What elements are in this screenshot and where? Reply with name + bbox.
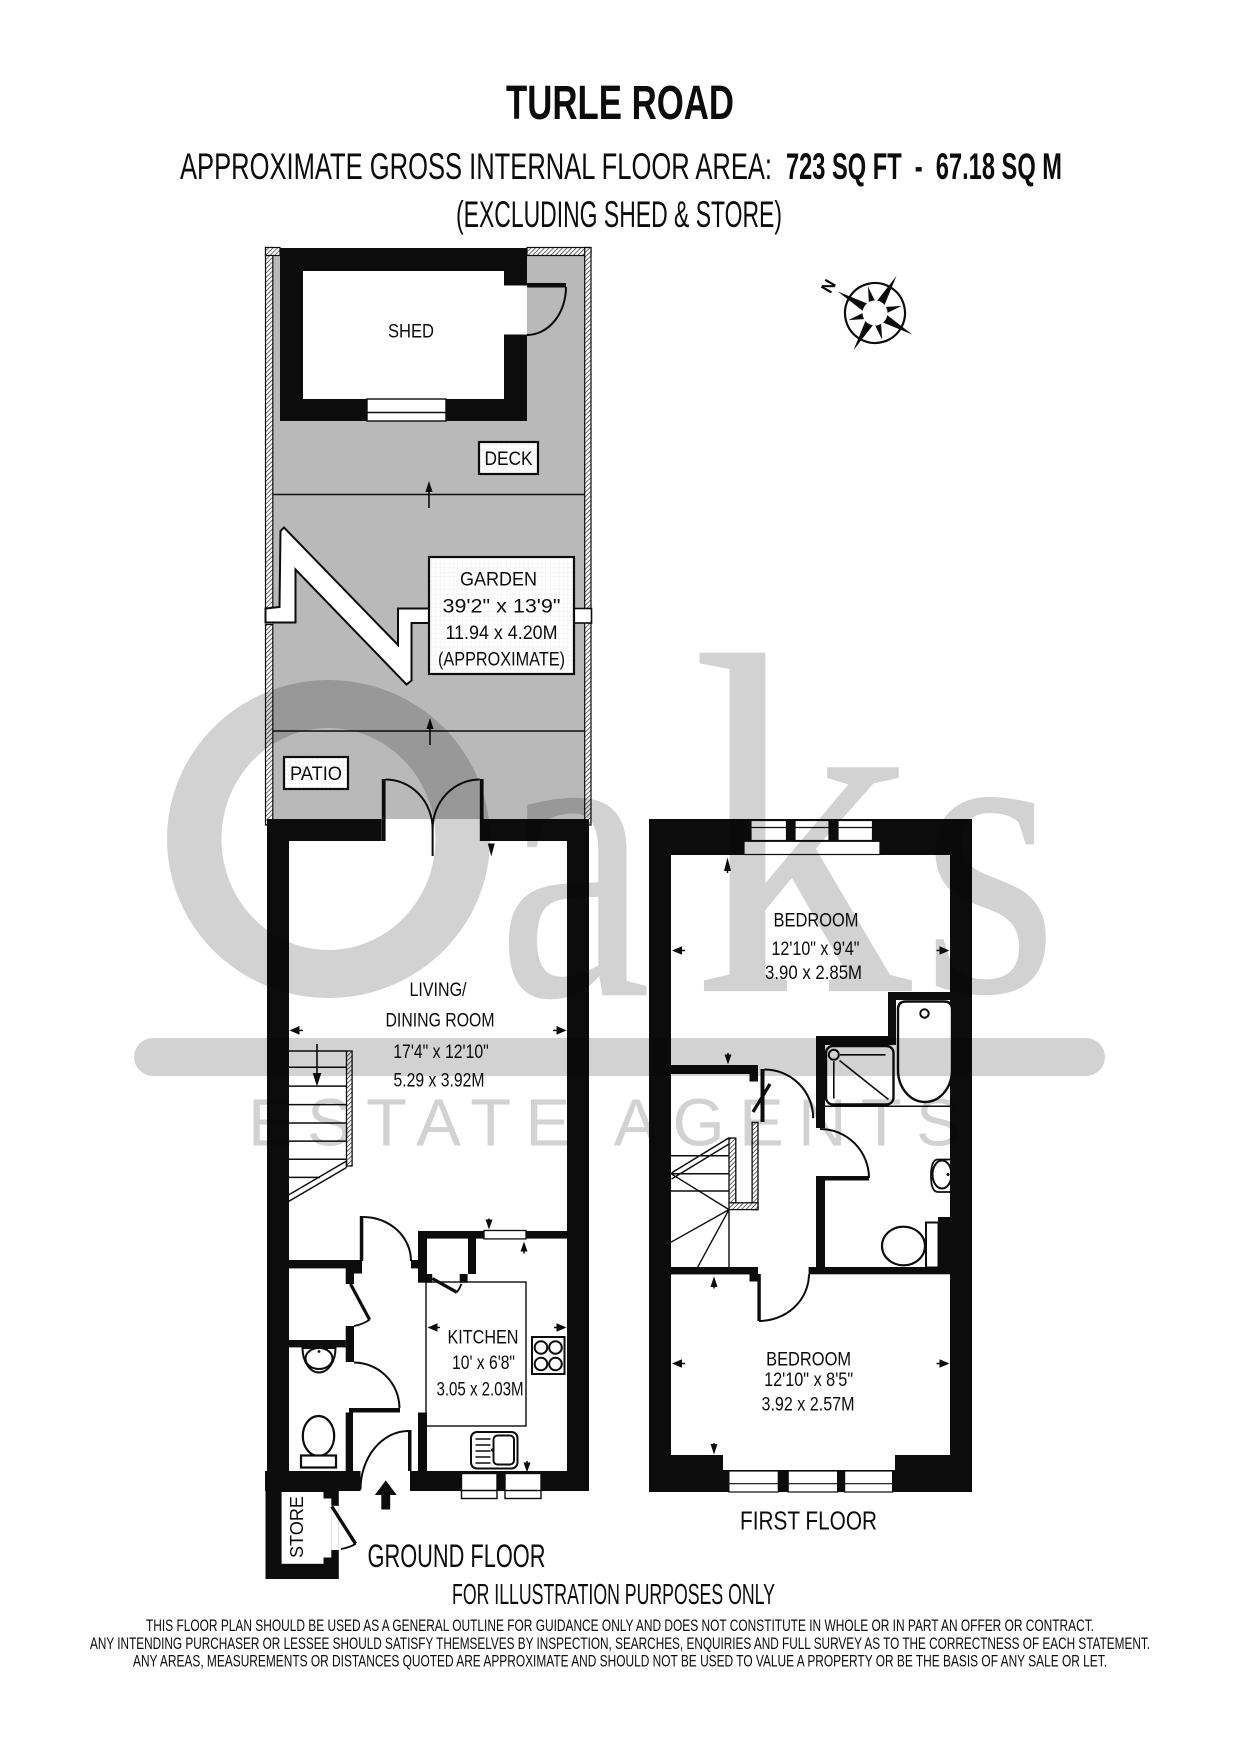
- svg-text:GROUND FLOOR: GROUND FLOOR: [368, 1538, 546, 1574]
- svg-text:3.92 x 2.57M: 3.92 x 2.57M: [762, 1395, 855, 1416]
- svg-text:(EXCLUDING SHED & STORE): (EXCLUDING SHED & STORE): [456, 194, 782, 235]
- svg-text:DINING ROOM: DINING ROOM: [386, 1011, 495, 1032]
- svg-text:APPROXIMATE GROSS INTERNAL FLO: APPROXIMATE GROSS INTERNAL FLOOR AREA:: [180, 146, 772, 187]
- svg-text:THIS FLOOR PLAN SHOULD BE USED: THIS FLOOR PLAN SHOULD BE USED AS A GENE…: [146, 1617, 1094, 1635]
- svg-text:a: a: [497, 620, 652, 1086]
- svg-text:10' x 6'8": 10' x 6'8": [452, 1353, 515, 1374]
- svg-text:s: s: [921, 625, 1059, 1081]
- svg-text:k: k: [691, 556, 912, 1097]
- svg-text:ESTATE AGENTS: ESTATE AGENTS: [248, 1086, 975, 1161]
- svg-text:ANY AREAS, MEASUREMENTS OR DIS: ANY AREAS, MEASUREMENTS OR DISTANCES QUO…: [133, 1653, 1107, 1671]
- svg-text:BEDROOM: BEDROOM: [766, 1350, 851, 1371]
- svg-text:STORE: STORE: [287, 1496, 307, 1558]
- svg-text:TURLE ROAD: TURLE ROAD: [506, 77, 734, 130]
- svg-text:ANY INTENDING PURCHASER OR LES: ANY INTENDING PURCHASER OR LESSEE SHOULD…: [90, 1635, 1150, 1653]
- svg-text:SHED: SHED: [388, 322, 434, 343]
- svg-text:KITCHEN: KITCHEN: [448, 1328, 519, 1349]
- svg-text:FIRST FLOOR: FIRST FLOOR: [740, 1508, 877, 1536]
- svg-text:39'2" x 13'9": 39'2" x 13'9": [443, 597, 561, 618]
- svg-text:GARDEN: GARDEN: [460, 570, 537, 591]
- svg-text:LIVING/: LIVING/: [410, 980, 468, 1001]
- svg-text:723 SQ FT - 67.18 SQ M: 723 SQ FT - 67.18 SQ M: [786, 146, 1062, 187]
- svg-text:DECK: DECK: [485, 449, 533, 470]
- svg-text:FOR ILLUSTRATION PURPOSES ONLY: FOR ILLUSTRATION PURPOSES ONLY: [452, 1579, 775, 1611]
- svg-text:PATIO: PATIO: [290, 764, 342, 785]
- svg-text:12'10" x 8'5": 12'10" x 8'5": [764, 1370, 853, 1391]
- svg-text:3.05 x 2.03M: 3.05 x 2.03M: [437, 1380, 524, 1401]
